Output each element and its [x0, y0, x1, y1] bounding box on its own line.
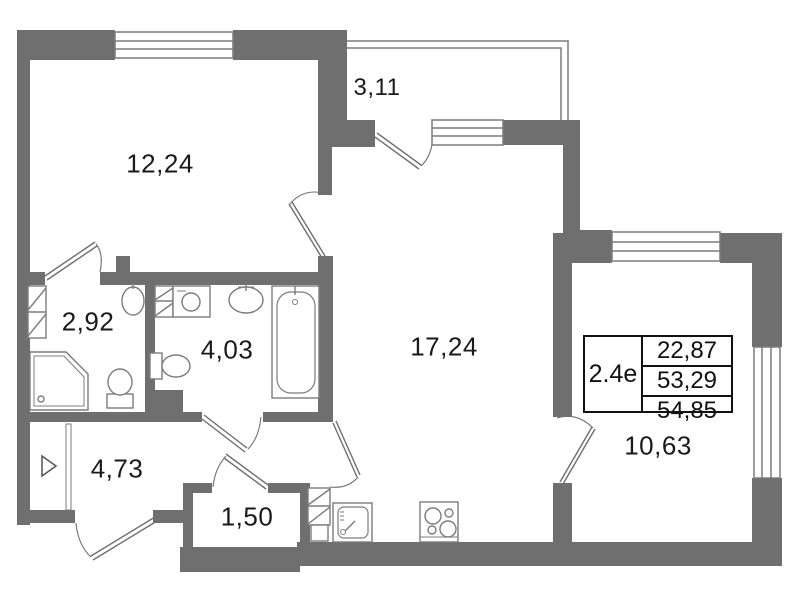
unit-id: 2.4е: [585, 337, 643, 411]
wall-hall-bottom-stub: [153, 510, 183, 523]
storage-shelf-bath: [155, 286, 173, 317]
storage-shelf-kitchen: [308, 488, 330, 541]
wall-closet-top-left: [183, 483, 212, 493]
stove: [420, 502, 458, 542]
wall-bath-bottom-right: [263, 412, 333, 422]
wall-under-living-main: [100, 272, 333, 285]
floor-plan: 12,24 3,11 2,92 4,03 17,24 10,63 4,73 1,…: [0, 0, 799, 600]
toilet-bath: [150, 353, 190, 379]
door-kitchen-passage: [330, 421, 360, 487]
wall-bedroom-top-left: [565, 230, 612, 263]
unit-areas: 22,87 53,29 54,85: [643, 337, 731, 411]
door-closet: [213, 454, 268, 489]
wall-under-living-left: [28, 272, 45, 285]
wall-top-left: [17, 30, 115, 60]
door-bathroom: [202, 415, 261, 452]
door-entrance: [76, 517, 157, 560]
wall-door-jamb-stub: [116, 256, 130, 272]
unit-info-table: 2.4е 22,87 53,29 54,85: [583, 335, 733, 413]
wall-balcony-bottom-left: [328, 120, 375, 147]
unit-area-living: 22,87: [643, 337, 731, 365]
wall-top-right: [233, 30, 347, 60]
room-label-living: 12,24: [126, 149, 194, 180]
sink-wc: [122, 283, 144, 315]
room-label-bathroom: 4,03: [201, 335, 254, 366]
wall-bottom-band-right: [297, 542, 782, 566]
door-balcony: [375, 133, 432, 169]
wall-bath-bottom-left: [28, 412, 202, 422]
shower-cabin: [30, 352, 88, 410]
room-label-wc: 2,92: [62, 307, 115, 338]
wall-hall-bottom-left: [20, 510, 75, 523]
window-living-top: [115, 32, 233, 58]
room-label-closet: 1,50: [221, 502, 274, 533]
toilet-wc: [107, 369, 133, 408]
kitchen-sink: [333, 503, 372, 542]
window-bedroom-right: [754, 347, 780, 478]
door-living: [289, 192, 330, 258]
hall-wardrobe-line: [66, 424, 71, 510]
window-balcony-inner: [432, 120, 503, 145]
room-label-kitchen-living: 17,24: [410, 332, 478, 363]
wall-jog-vertical: [563, 120, 580, 235]
unit-area-total: 53,29: [643, 365, 731, 395]
sink-bath: [229, 283, 263, 313]
door-wc: [45, 242, 101, 280]
unit-area-total-with-balcony: 54,85: [643, 395, 731, 425]
door-bedroom: [557, 416, 595, 484]
wall-closet-left: [183, 483, 193, 557]
wall-divider-bedroom-upper: [553, 233, 572, 417]
bathtub: [272, 286, 319, 398]
window-bedroom-top: [612, 232, 720, 261]
wall-bottom-band-left: [180, 547, 300, 572]
room-label-balcony: 3,11: [354, 74, 401, 102]
wall-divider-bedroom-lower: [553, 483, 572, 545]
room-label-bedroom: 10,63: [624, 431, 692, 462]
wall-right-outer-upper: [752, 233, 782, 347]
room-label-hallway: 4,73: [91, 454, 144, 485]
wall-chunk-wc-bath-bottom: [148, 390, 183, 412]
entrance-arrow-icon: [42, 456, 56, 476]
washing-machine: [173, 286, 210, 317]
storage-shelf-wc: [28, 286, 46, 338]
